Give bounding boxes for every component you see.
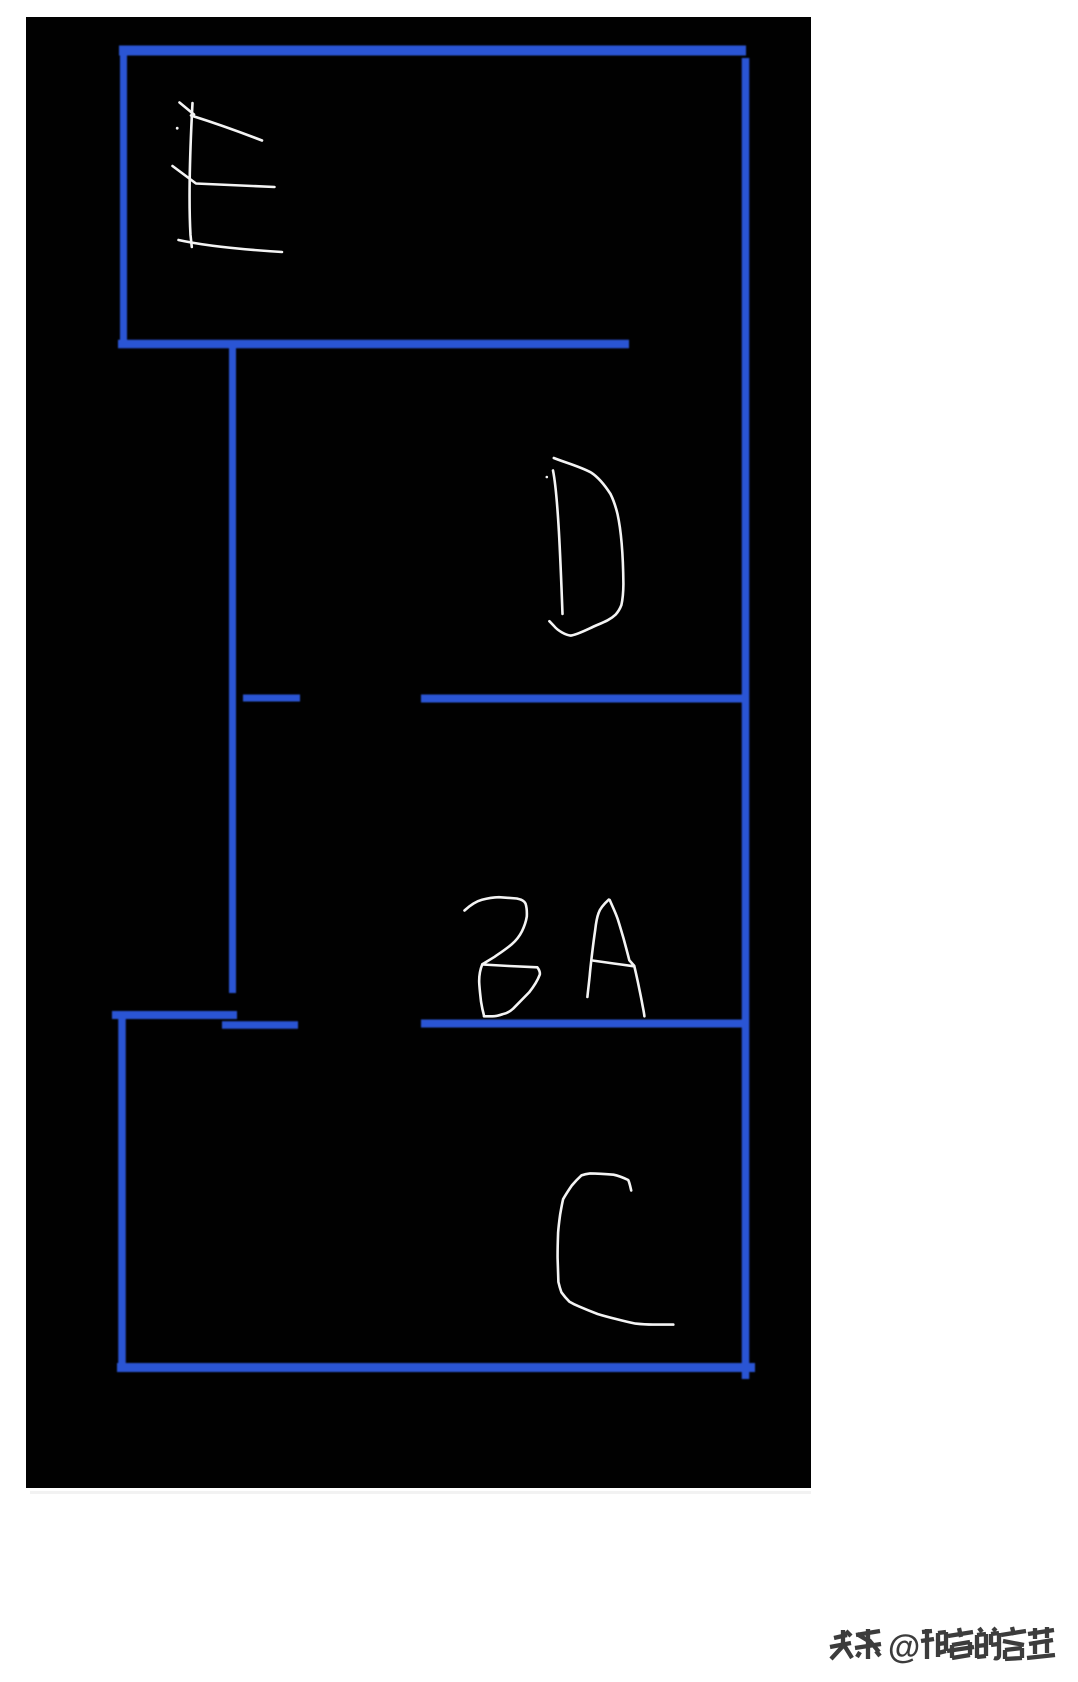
svg-text:@: @ [888, 1628, 920, 1665]
